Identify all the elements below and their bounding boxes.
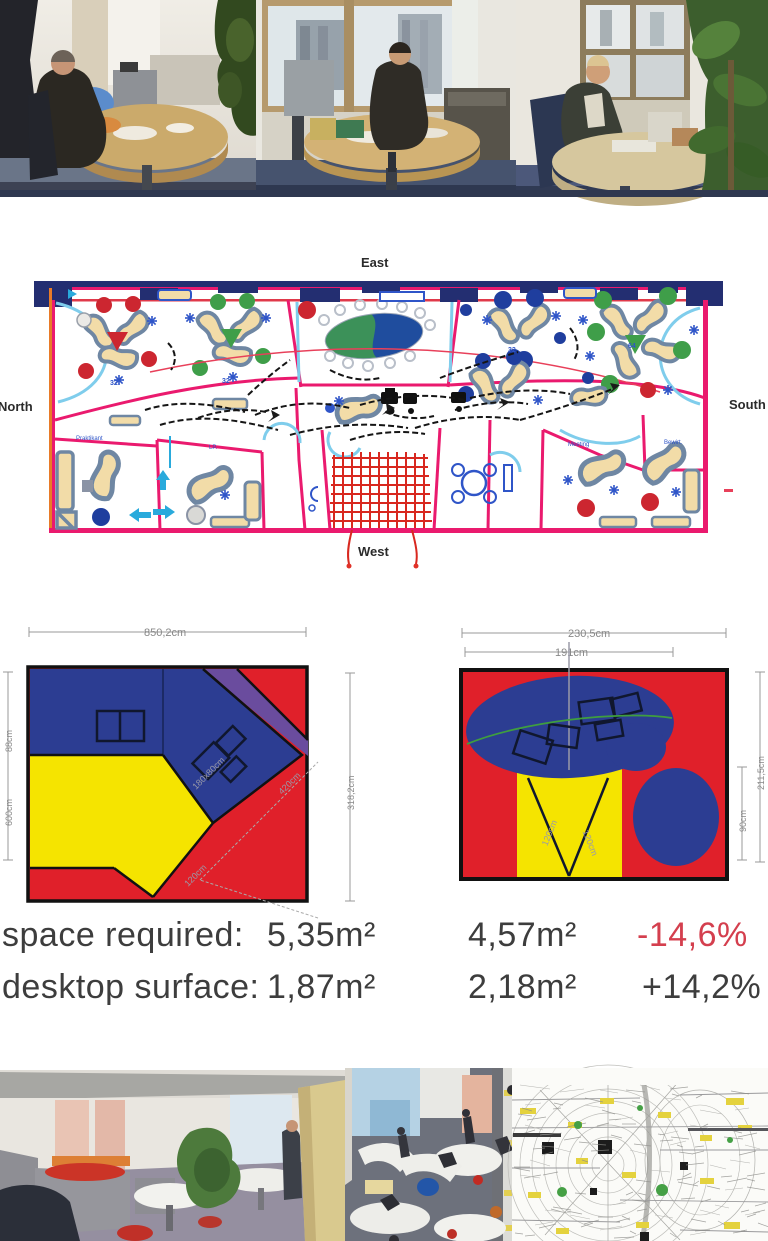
svg-text:Bewirt.: Bewirt. [664,440,683,446]
svg-text:850,2cm: 850,2cm [144,627,186,639]
svg-text:32: 32 [508,347,516,354]
svg-text:32: 32 [222,378,230,385]
svg-text:191cm: 191cm [555,647,588,659]
svg-text:4,57m²: 4,57m² [468,916,577,954]
svg-text:North: North [0,399,33,414]
svg-text:-14,6%: -14,6% [637,916,748,954]
svg-text:space required:: space required: [2,916,244,954]
svg-text:318,2cm: 318,2cm [346,775,356,810]
svg-text:Meeting: Meeting [568,442,589,448]
svg-text:desktop surface:: desktop surface: [2,968,259,1006]
svg-text:90cm: 90cm [738,810,748,832]
svg-text:West: West [358,544,389,559]
svg-text:Praktikant: Praktikant [76,436,103,442]
svg-text:2,18m²: 2,18m² [468,968,577,1006]
svg-text:32: 32 [110,380,118,387]
svg-text:64: 64 [628,343,636,350]
svg-text:LP.: LP. [209,445,218,451]
svg-text:1,87m²: 1,87m² [267,968,376,1006]
svg-text:South: South [729,397,766,412]
svg-text:600cm: 600cm [4,799,14,826]
svg-text:88cm: 88cm [4,730,14,752]
svg-text:5,35m²: 5,35m² [267,916,376,954]
svg-text:+14,2%: +14,2% [642,968,761,1006]
svg-text:230,5cm: 230,5cm [568,628,610,640]
svg-text:211,5cm: 211,5cm [756,756,766,790]
svg-text:East: East [361,255,389,270]
